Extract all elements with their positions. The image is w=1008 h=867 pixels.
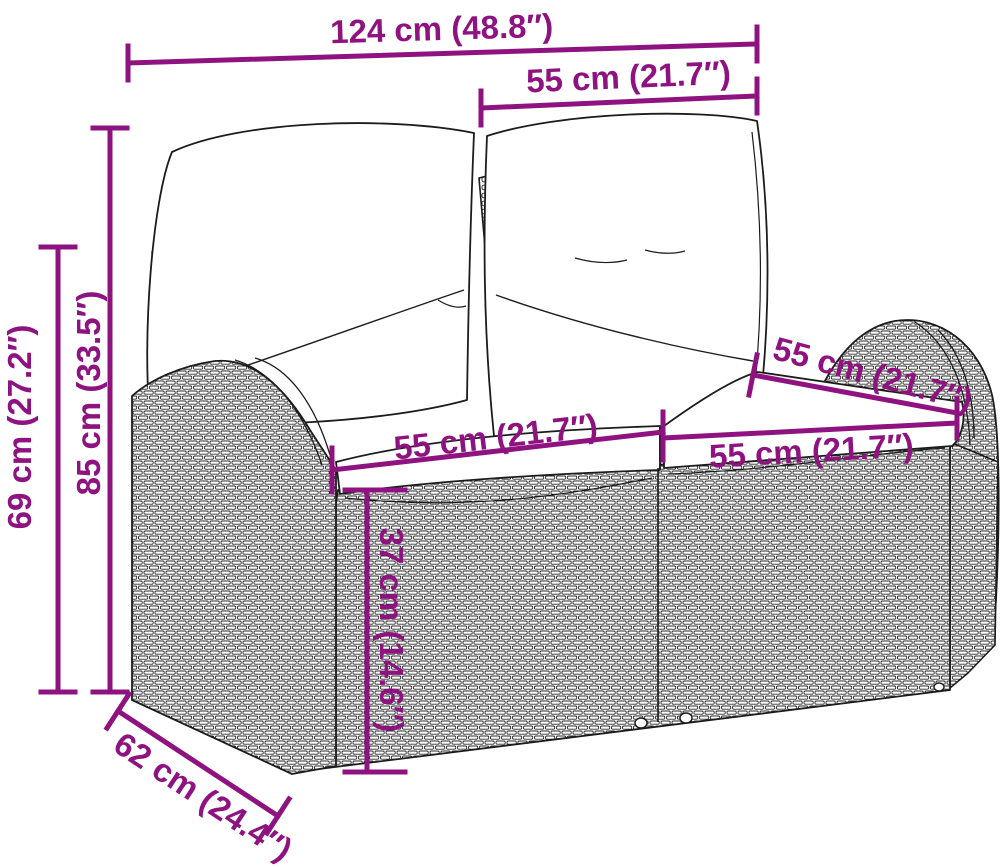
dimension-overall-height: 85 cm (33.5″) [70, 128, 127, 692]
foot-center [680, 713, 692, 723]
dimension-label-overall-width: 124 cm (48.8″) [330, 7, 554, 51]
product-dimension-diagram: 124 cm (48.8″) 55 cm (21.7″) 85 cm (33.5… [0, 0, 1008, 867]
base-side-right [950, 442, 998, 688]
dimension-label-seat-height: 37 cm (14.6″) [373, 528, 410, 733]
dimension-label-overall-height: 85 cm (33.5″) [70, 291, 107, 496]
dimension-backrest-height: 69 cm (27.2″) [1, 247, 75, 692]
diagram-canvas: 124 cm (48.8″) 55 cm (21.7″) 85 cm (33.5… [0, 0, 1008, 867]
foot-left [635, 718, 647, 728]
dimension-label-backrest-height: 69 cm (27.2″) [1, 325, 38, 530]
foot-right [934, 683, 944, 691]
dimension-label-backrest-cushion-width: 55 cm (21.7″) [525, 54, 731, 100]
